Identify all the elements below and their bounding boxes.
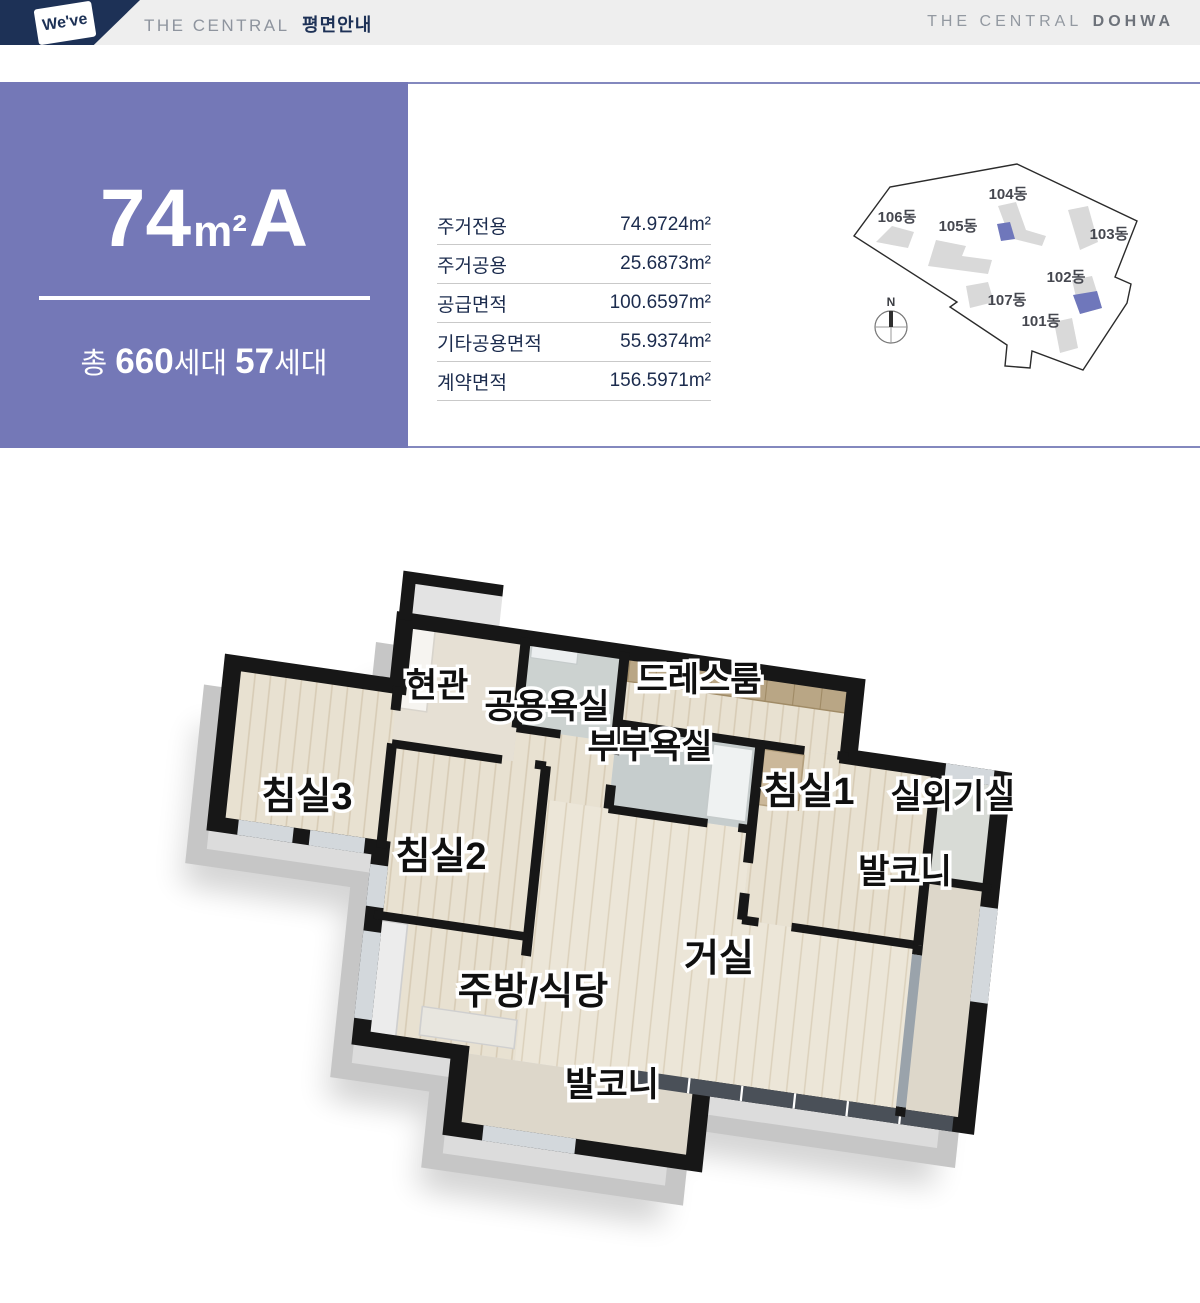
room-label-living: 거실 <box>684 938 754 980</box>
compass-north-label: N <box>887 295 896 309</box>
header-left-title: THE CENTRAL 평면안내 <box>144 11 372 37</box>
page-title: 평면안내 <box>302 15 372 35</box>
unit-size-number: 74 <box>100 178 191 260</box>
header-right-prefix: THE CENTRAL <box>927 13 1082 30</box>
households-line: 총 660세대 57세대 <box>0 340 408 382</box>
households-mid: 세대 <box>174 348 235 380</box>
area-label: 계약면적 <box>437 368 555 395</box>
building-label-104: 104동 <box>989 186 1028 203</box>
households-type-count: 57 <box>235 342 274 381</box>
unit-size-type: A <box>249 178 308 260</box>
weve-logo-text: We've <box>41 11 89 36</box>
table-row: 공급면적 100.6597m² <box>437 284 711 323</box>
unit-size-sup: m² <box>193 210 247 254</box>
weve-logo: We've <box>34 1 97 46</box>
bedroom3-floor <box>216 663 398 849</box>
table-row: 기타공용면적 55.9374m² <box>437 323 711 362</box>
building-label-106: 106동 <box>878 209 917 226</box>
area-label: 공급면적 <box>437 290 555 317</box>
area-table: 주거전용 74.9724m² 주거공용 25.6873m² 공급면적 100.6… <box>437 206 711 401</box>
unit-title-divider <box>39 296 370 300</box>
room-label-entrance: 현관 <box>406 667 469 705</box>
area-value: 55.9374m² <box>620 331 711 353</box>
table-row: 주거공용 25.6873m² <box>437 245 711 284</box>
households-prefix: 총 <box>81 348 116 380</box>
header-right-title: THE CENTRAL DOHWA <box>927 13 1174 31</box>
room-label-balcony-bottom: 발코니 <box>565 1066 659 1104</box>
kitchen-window <box>363 932 372 1019</box>
building-label-107: 107동 <box>988 292 1027 309</box>
ac-room-window <box>945 771 993 778</box>
room-label-dressroom: 드레스룸 <box>636 661 761 699</box>
room-label-bedroom1: 침실1 <box>763 771 854 813</box>
table-row: 주거전용 74.9724m² <box>437 206 711 245</box>
room-label-bedroom3: 침실3 <box>261 776 352 818</box>
site-map: 106동 105동 104동 103동 102동 107동 101동 N <box>840 150 1170 395</box>
area-value: 25.6873m² <box>620 253 711 275</box>
room-label-common-bath: 공용욕실 <box>484 688 609 726</box>
room-label-bedroom2: 침실2 <box>395 836 486 878</box>
page: THE CENTRAL 평면안내 THE CENTRAL DOHWA We've… <box>0 0 1200 1303</box>
room-label-master-bath: 부부욕실 <box>587 728 712 766</box>
area-label: 주거공용 <box>437 251 555 278</box>
area-value: 156.5971m² <box>610 370 711 392</box>
households-suffix: 세대 <box>274 348 327 380</box>
header-band: THE CENTRAL 평면안내 THE CENTRAL DOHWA <box>0 0 1200 45</box>
compass: N <box>875 295 907 343</box>
room-label-ac-room: 실외기실 <box>890 778 1015 816</box>
table-row: 계약면적 156.5971m² <box>437 362 711 401</box>
room-label-balcony-right: 발코니 <box>858 853 952 891</box>
unit-type-title: 74 m² A <box>0 178 408 260</box>
area-label: 기타공용면적 <box>437 329 555 356</box>
building-label-101: 101동 <box>1022 313 1061 330</box>
building-label-105: 105동 <box>939 218 978 235</box>
households-total: 660 <box>115 342 173 381</box>
area-value: 74.9724m² <box>620 214 711 236</box>
unit-type-panel: 74 m² A 총 660세대 57세대 <box>0 82 408 448</box>
floor-plan: 현관 공용욕실 드레스룸 부부욕실 침실1 실외기실 침실3 침실2 발코니 거… <box>150 545 1070 1275</box>
bedroom2-window <box>375 865 379 907</box>
balcony-right-window <box>979 908 989 1003</box>
building-label-103: 103동 <box>1090 226 1129 243</box>
header-left-prefix: THE CENTRAL <box>144 16 290 35</box>
room-label-kitchen: 주방/식당 <box>458 971 608 1013</box>
bathtub <box>706 744 753 822</box>
area-label: 주거전용 <box>437 212 555 239</box>
building-label-102: 102동 <box>1047 269 1086 286</box>
area-value: 100.6597m² <box>610 292 711 314</box>
brand-name: DOHWA <box>1093 13 1174 30</box>
